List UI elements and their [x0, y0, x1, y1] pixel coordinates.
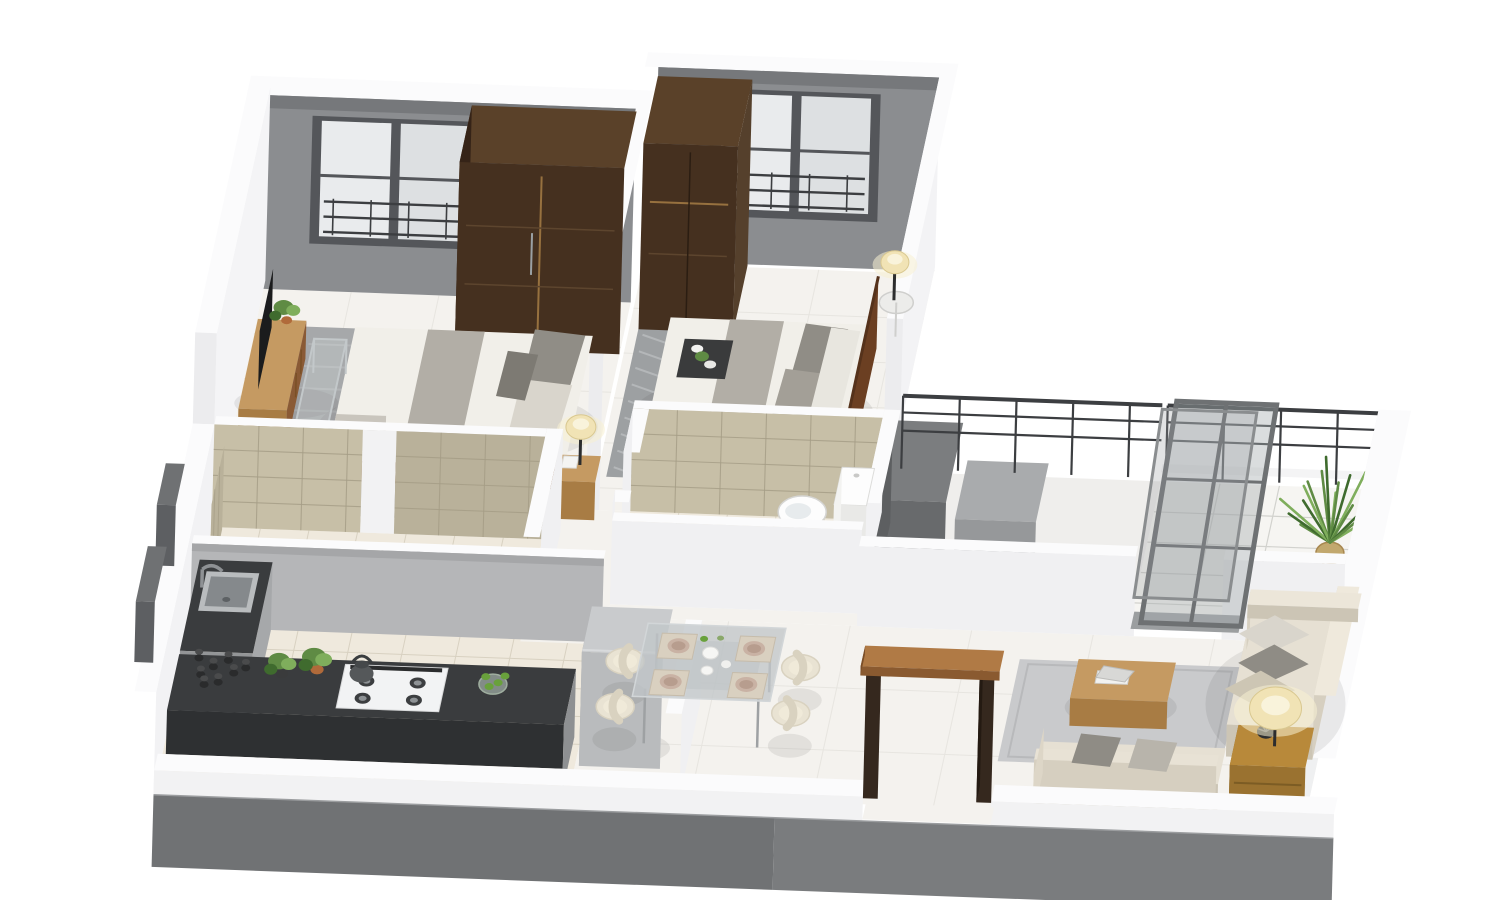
ensuite-bathroom [610, 400, 901, 613]
screenshot-root [0, 0, 1500, 900]
floorplan-3d-render [0, 0, 1500, 900]
wardrobe-bedroom2 [639, 76, 753, 333]
bath1-north-wall [212, 416, 547, 539]
wardrobe-bedroom1 [455, 105, 637, 354]
serving-tray [676, 339, 733, 379]
ensuite-south-wall [610, 512, 864, 613]
